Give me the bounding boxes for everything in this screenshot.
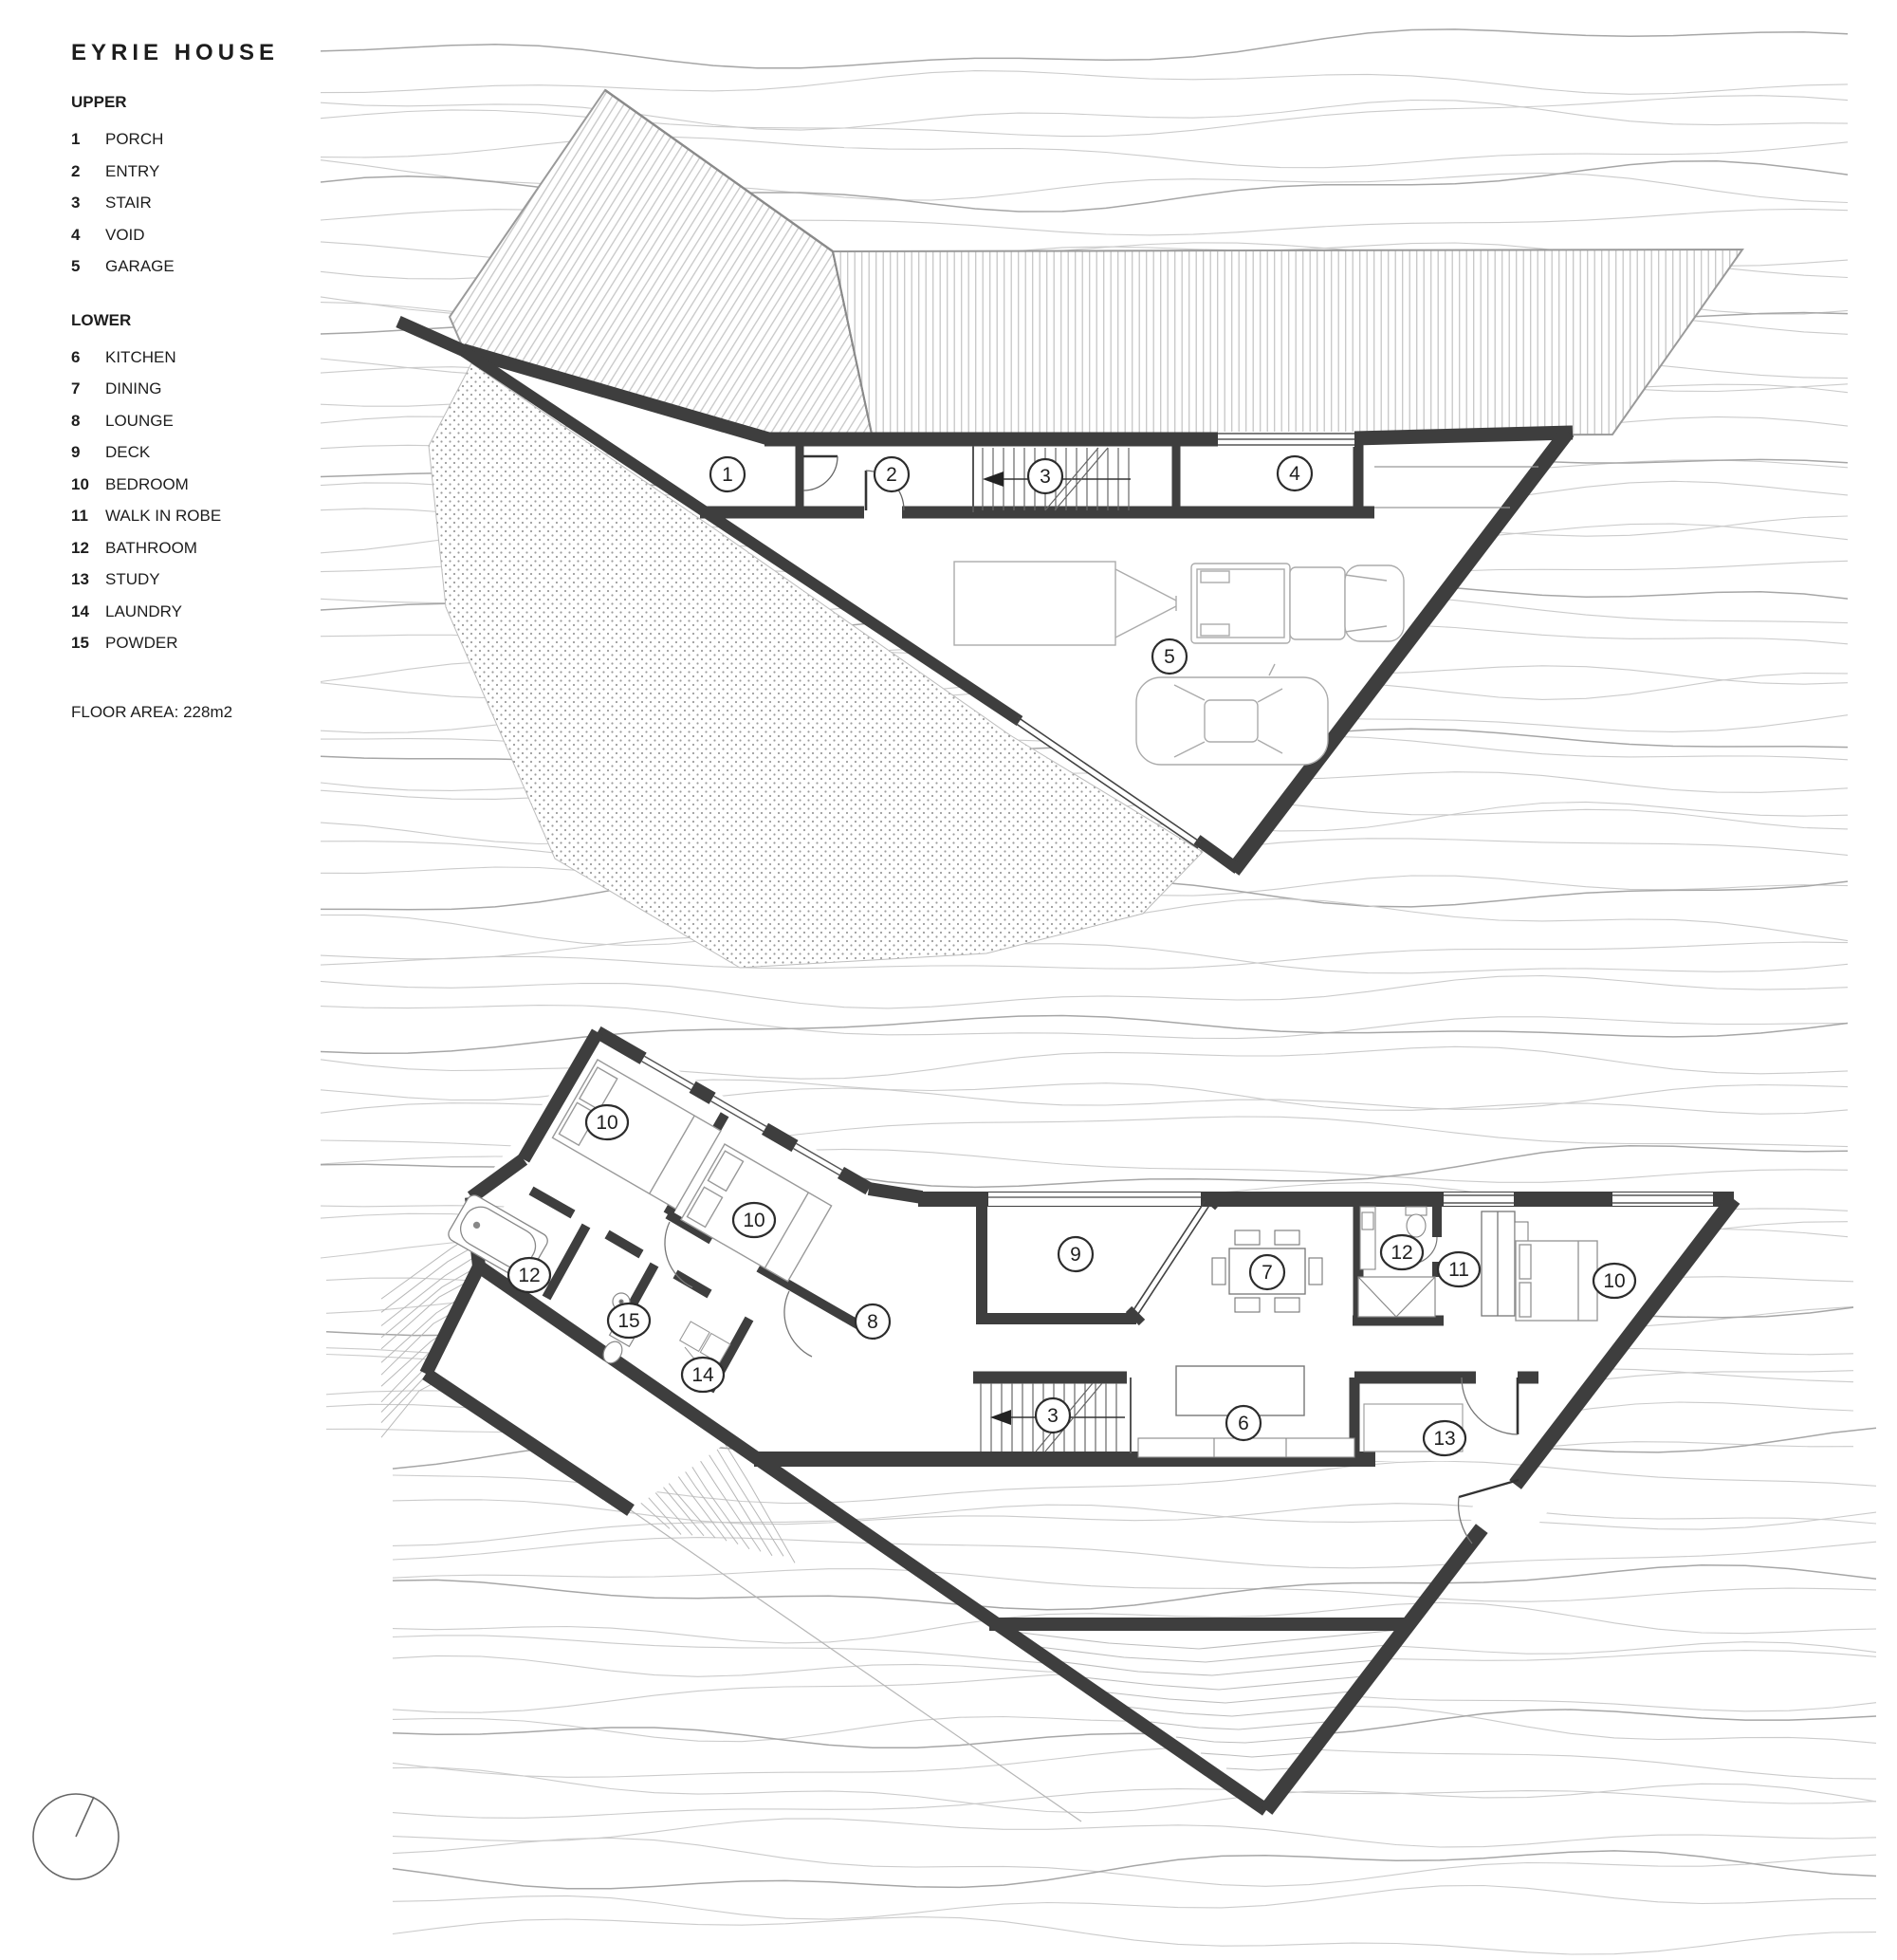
contour-line bbox=[393, 1917, 1876, 1954]
pickup-truck bbox=[1191, 564, 1404, 643]
legend-item-number: 15 bbox=[71, 627, 105, 659]
wall-wing-connector bbox=[869, 1189, 922, 1197]
room-label-bubble: 8 bbox=[856, 1304, 890, 1339]
floor-area-note: FLOOR AREA: 228m2 bbox=[71, 703, 308, 722]
room-label-number: 14 bbox=[691, 1364, 714, 1386]
legend-item-study: 13STUDY bbox=[71, 564, 308, 596]
legend: EYRIE HOUSE UPPER 1PORCH2ENTRY3STAIR4VOI… bbox=[71, 40, 308, 722]
contour-line bbox=[321, 71, 1848, 95]
legend-item-label: LAUNDRY bbox=[105, 596, 182, 628]
legend-item-kitchen: 6KITCHEN bbox=[71, 342, 308, 374]
legend-item-number: 10 bbox=[71, 469, 105, 501]
legend-item-label: DINING bbox=[105, 373, 162, 405]
legend-item-label: DECK bbox=[105, 436, 150, 469]
drawing-sheet: EYRIE HOUSE UPPER 1PORCH2ENTRY3STAIR4VOI… bbox=[0, 0, 1897, 1960]
contour-line bbox=[321, 137, 1848, 167]
legend-item-walk-in-robe: 11WALK IN ROBE bbox=[71, 500, 308, 532]
contour-line bbox=[321, 976, 1848, 1008]
contour-line bbox=[393, 1838, 1876, 1886]
room-label-bubble: 14 bbox=[682, 1358, 724, 1392]
contour-line bbox=[393, 1851, 1876, 1889]
legend-item-porch: 1PORCH bbox=[71, 123, 308, 156]
legend-item-entry: 2ENTRY bbox=[71, 156, 308, 188]
room-label-number: 7 bbox=[1262, 1262, 1273, 1284]
legend-item-deck: 9DECK bbox=[71, 436, 308, 469]
room-label-bubble: 3 bbox=[1028, 459, 1062, 493]
room-label-number: 5 bbox=[1164, 646, 1175, 668]
room-label-bubble: 15 bbox=[608, 1304, 650, 1338]
room-label-bubble: 13 bbox=[1424, 1421, 1465, 1455]
room-label-bubble: 6 bbox=[1226, 1406, 1261, 1440]
room-label-number: 12 bbox=[518, 1265, 540, 1286]
roof-plane-right bbox=[833, 250, 1742, 438]
room-label-bubble: 10 bbox=[733, 1203, 775, 1237]
room-label-number: 3 bbox=[1040, 466, 1051, 488]
window-top-master bbox=[1612, 1193, 1713, 1206]
toilet bbox=[1406, 1207, 1427, 1237]
legend-items-lower: 6KITCHEN7DINING8LOUNGE9DECK10BEDROOM11WA… bbox=[71, 342, 308, 659]
room-label-number: 8 bbox=[867, 1311, 878, 1333]
legend-item-number: 12 bbox=[71, 532, 105, 564]
legend-item-number: 11 bbox=[71, 500, 105, 532]
legend-item-label: BEDROOM bbox=[105, 469, 189, 501]
contour-line bbox=[321, 1046, 1848, 1079]
room-label-bubble: 1 bbox=[710, 457, 745, 491]
legend-item-label: POWDER bbox=[105, 627, 178, 659]
contour-line bbox=[393, 1569, 1876, 1602]
room-label-number: 15 bbox=[617, 1310, 639, 1332]
lower-floor-plan: 10101215148937612111013 bbox=[426, 1032, 1734, 1821]
legend-items-upper: 1PORCH2ENTRY3STAIR4VOID5GARAGE bbox=[71, 123, 308, 283]
legend-item-number: 14 bbox=[71, 596, 105, 628]
window-top-deck bbox=[988, 1193, 1201, 1206]
contour-line bbox=[321, 1006, 1848, 1039]
room-label-number: 13 bbox=[1433, 1428, 1455, 1450]
room-label-number: 1 bbox=[722, 464, 733, 486]
room-label-bubble: 5 bbox=[1152, 639, 1187, 674]
contour-line bbox=[393, 1819, 1876, 1847]
shower bbox=[1358, 1277, 1435, 1317]
contour-line bbox=[321, 942, 1848, 969]
legend-group-upper: UPPER 1PORCH2ENTRY3STAIR4VOID5GARAGE bbox=[71, 93, 308, 283]
room-label-number: 11 bbox=[1448, 1259, 1469, 1281]
legend-heading-upper: UPPER bbox=[71, 93, 308, 112]
legend-item-number: 5 bbox=[71, 250, 105, 283]
room-label-number: 4 bbox=[1289, 463, 1300, 485]
room-label-bubble: 10 bbox=[586, 1105, 628, 1139]
legend-item-number: 6 bbox=[71, 342, 105, 374]
room-label-bubble: 12 bbox=[1381, 1235, 1423, 1269]
room-label-bubble: 9 bbox=[1059, 1237, 1093, 1271]
legend-item-number: 2 bbox=[71, 156, 105, 188]
legend-item-label: LOUNGE bbox=[105, 405, 174, 437]
room-label-bubble: 3 bbox=[1036, 1398, 1070, 1433]
legend-item-label: STUDY bbox=[105, 564, 160, 596]
legend-item-bathroom: 12BATHROOM bbox=[71, 532, 308, 564]
wall-top-b bbox=[1354, 433, 1573, 438]
legend-heading-lower: LOWER bbox=[71, 311, 308, 330]
room-label-number: 10 bbox=[743, 1210, 764, 1231]
room-label-number: 10 bbox=[596, 1112, 617, 1134]
contour-line bbox=[321, 29, 1848, 68]
legend-item-number: 13 bbox=[71, 564, 105, 596]
room-label-bubble: 11 bbox=[1438, 1252, 1480, 1286]
room-label-bubble: 2 bbox=[875, 457, 909, 491]
legend-item-label: KITCHEN bbox=[105, 342, 176, 374]
north-arrow-icon bbox=[33, 1794, 119, 1879]
room-label-number: 6 bbox=[1238, 1413, 1249, 1434]
window-top-robe bbox=[1444, 1193, 1514, 1206]
legend-item-label: WALK IN ROBE bbox=[105, 500, 221, 532]
contour-line bbox=[393, 1747, 1876, 1779]
room-label-number: 10 bbox=[1603, 1270, 1625, 1292]
room-label-number: 3 bbox=[1047, 1405, 1059, 1427]
legend-item-number: 7 bbox=[71, 373, 105, 405]
legend-item-bedroom: 10BEDROOM bbox=[71, 469, 308, 501]
vanity bbox=[1360, 1207, 1375, 1269]
room-label-bubble: 12 bbox=[508, 1258, 550, 1292]
legend-item-label: BATHROOM bbox=[105, 532, 197, 564]
legend-item-number: 4 bbox=[71, 219, 105, 251]
room-label-bubble: 7 bbox=[1250, 1255, 1284, 1289]
room-label-number: 12 bbox=[1391, 1242, 1412, 1264]
contour-line bbox=[393, 1789, 1876, 1819]
legend-item-number: 3 bbox=[71, 187, 105, 219]
legend-item-laundry: 14LAUNDRY bbox=[71, 596, 308, 628]
legend-item-label: ENTRY bbox=[105, 156, 159, 188]
legend-item-stair: 3STAIR bbox=[71, 187, 308, 219]
contour-line bbox=[321, 96, 1848, 137]
car bbox=[1136, 664, 1328, 765]
legend-item-powder: 15POWDER bbox=[71, 627, 308, 659]
room-label-number: 9 bbox=[1070, 1244, 1081, 1266]
legend-item-number: 9 bbox=[71, 436, 105, 469]
legend-item-label: GARAGE bbox=[105, 250, 175, 283]
contour-line bbox=[321, 101, 1848, 131]
contour-line bbox=[393, 1538, 1876, 1568]
legend-item-label: STAIR bbox=[105, 187, 152, 219]
master-bed bbox=[1516, 1241, 1597, 1321]
room-label-bubble: 4 bbox=[1278, 456, 1312, 490]
room-label-bubble: 10 bbox=[1593, 1264, 1635, 1298]
legend-item-garage: 5GARAGE bbox=[71, 250, 308, 283]
legend-item-lounge: 8LOUNGE bbox=[71, 405, 308, 437]
page-title: EYRIE HOUSE bbox=[71, 40, 308, 66]
room-label-number: 2 bbox=[886, 464, 897, 486]
legend-item-number: 1 bbox=[71, 123, 105, 156]
terrace-thin-edge bbox=[631, 1510, 1081, 1821]
legend-item-number: 8 bbox=[71, 405, 105, 437]
legend-item-label: VOID bbox=[105, 219, 145, 251]
legend-item-dining: 7DINING bbox=[71, 373, 308, 405]
legend-group-lower: LOWER 6KITCHEN7DINING8LOUNGE9DECK10BEDRO… bbox=[71, 311, 308, 659]
kitchen-bench bbox=[1138, 1438, 1354, 1457]
contour-line bbox=[393, 1886, 1876, 1920]
legend-item-void: 4VOID bbox=[71, 219, 308, 251]
legend-item-label: PORCH bbox=[105, 123, 163, 156]
